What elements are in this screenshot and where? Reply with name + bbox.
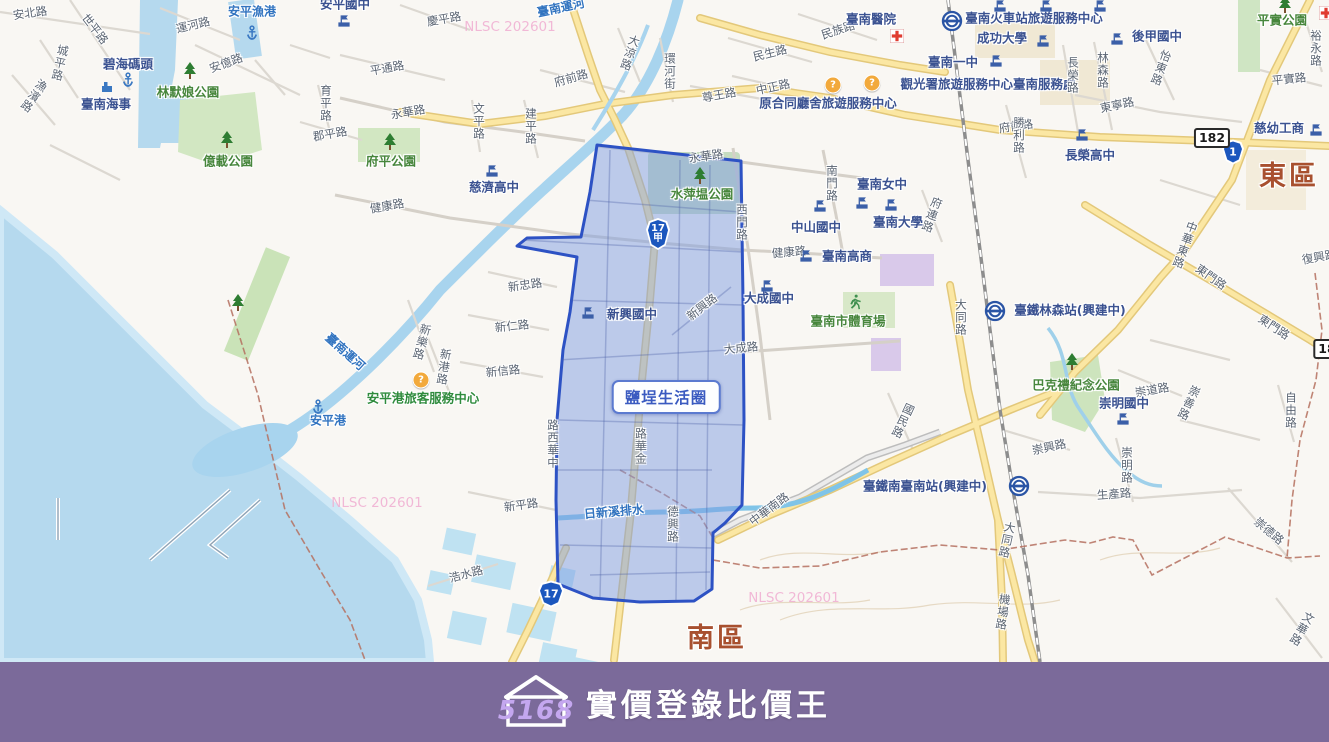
map-canvas[interactable]: 安北路世平路城平路漁濱路運河路安平漁港碧海碼頭臺南海事林默娘公園安億路億載公園安… <box>0 0 1329 662</box>
svg-text:5168: 5168 <box>498 696 574 726</box>
map-page: 安北路世平路城平路漁濱路運河路安平漁港碧海碼頭臺南海事林默娘公園安億路億載公園安… <box>0 0 1329 742</box>
region-label-box[interactable]: 鹽埕生活圈 <box>612 380 721 414</box>
basemap-tiles <box>0 0 1329 662</box>
footer-brand-bar: 5168 實價登錄比價王 <box>0 662 1329 742</box>
brand-logo-5168: 5168 <box>498 673 574 731</box>
brand-title: 實價登錄比價王 <box>586 680 831 725</box>
